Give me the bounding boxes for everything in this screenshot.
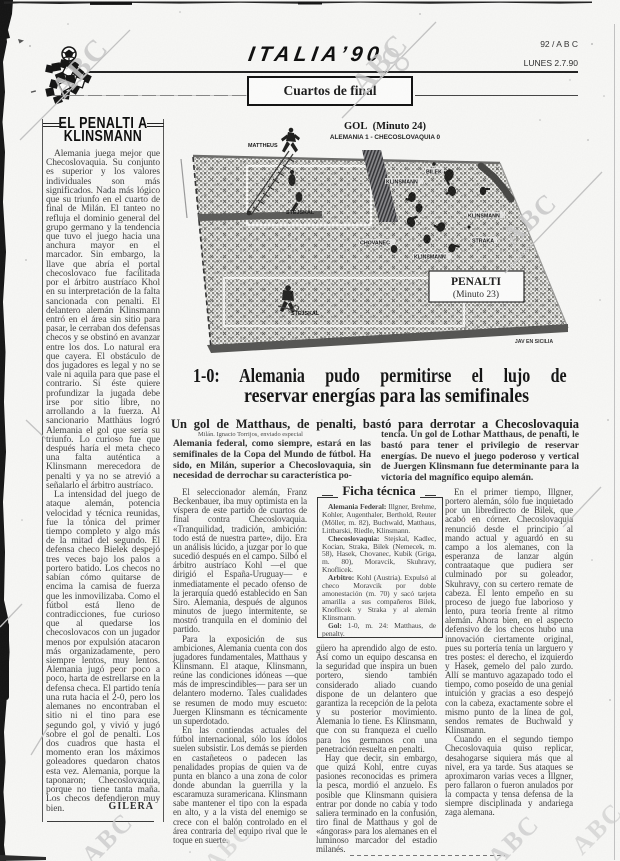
svg-text:(Minuto 23): (Minuto 23) — [453, 289, 499, 300]
svg-text:STRAKA: STRAKA — [472, 239, 494, 245]
svg-text:KLINSMANN: KLINSMANN — [386, 180, 418, 186]
svg-text:BILEK: BILEK — [426, 170, 442, 176]
svg-text:STEJSKAL: STEJSKAL — [286, 210, 315, 216]
svg-text:MATTHEUS: MATTHEUS — [248, 143, 278, 149]
svg-text:KLINSMANN: KLINSMANN — [414, 255, 446, 261]
svg-text:CHOVANEC: CHOVANEC — [360, 241, 390, 247]
svg-text:ALEMANIA 1 - CHECOSLOVAQUIA 0: ALEMANIA 1 - CHECOSLOVAQUIA 0 — [330, 134, 441, 141]
svg-text:GOL (Minuto 24): GOL (Minuto 24) — [344, 121, 426, 132]
svg-text:JAV EN SICILIA: JAV EN SICILIA — [515, 339, 553, 345]
svg-text:KLINSMANN: KLINSMANN — [468, 214, 500, 220]
svg-text:PENALTI: PENALTI — [451, 276, 502, 288]
svg-text:STEJSKAL: STEJSKAL — [291, 311, 320, 317]
